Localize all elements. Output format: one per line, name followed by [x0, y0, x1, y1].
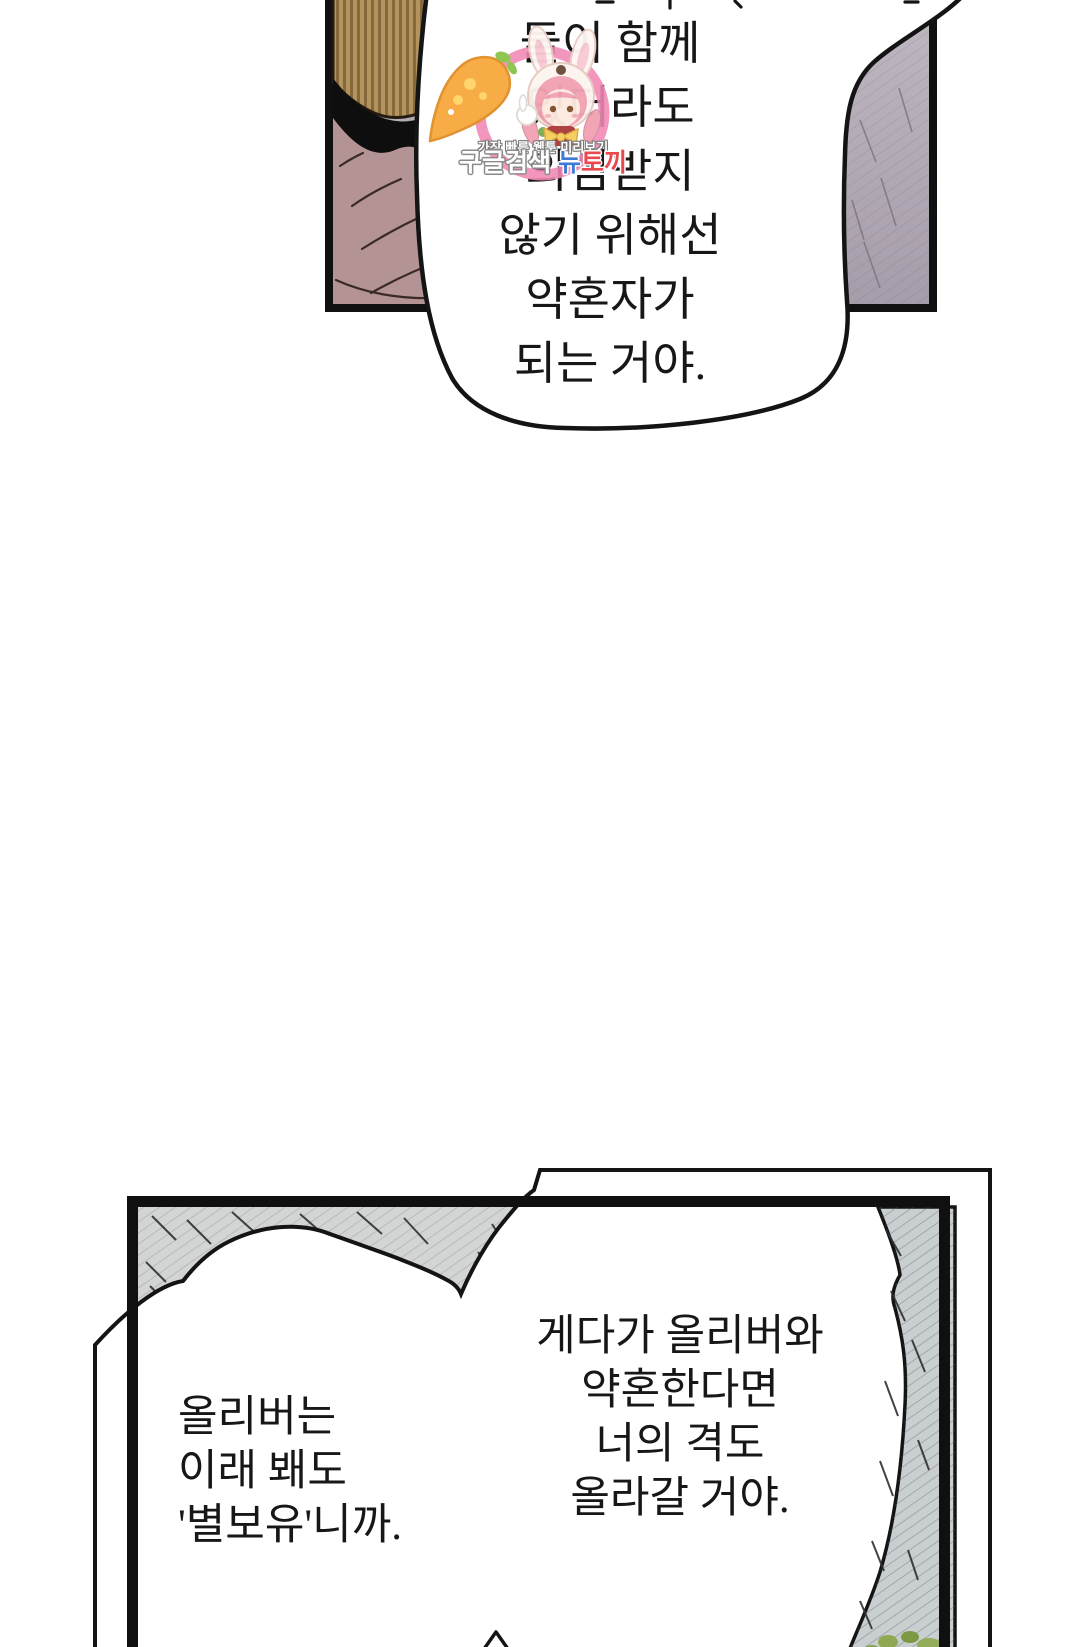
webtoon-page: 둘이 함께 있더라도 의심받지 않기 위해선 약혼자가 되는 거야. 게다가 올… [0, 0, 1080, 1647]
brand-new: 뉴 [558, 149, 581, 177]
watermark-mascot-illustration [0, 0, 1080, 1647]
watermark-brand: 구글검색 뉴토끼 [445, 150, 641, 177]
brand-toki: 토끼 [581, 149, 627, 177]
bunny-girl-icon [517, 24, 604, 146]
brand-google-search: 구글검색 [459, 149, 551, 177]
